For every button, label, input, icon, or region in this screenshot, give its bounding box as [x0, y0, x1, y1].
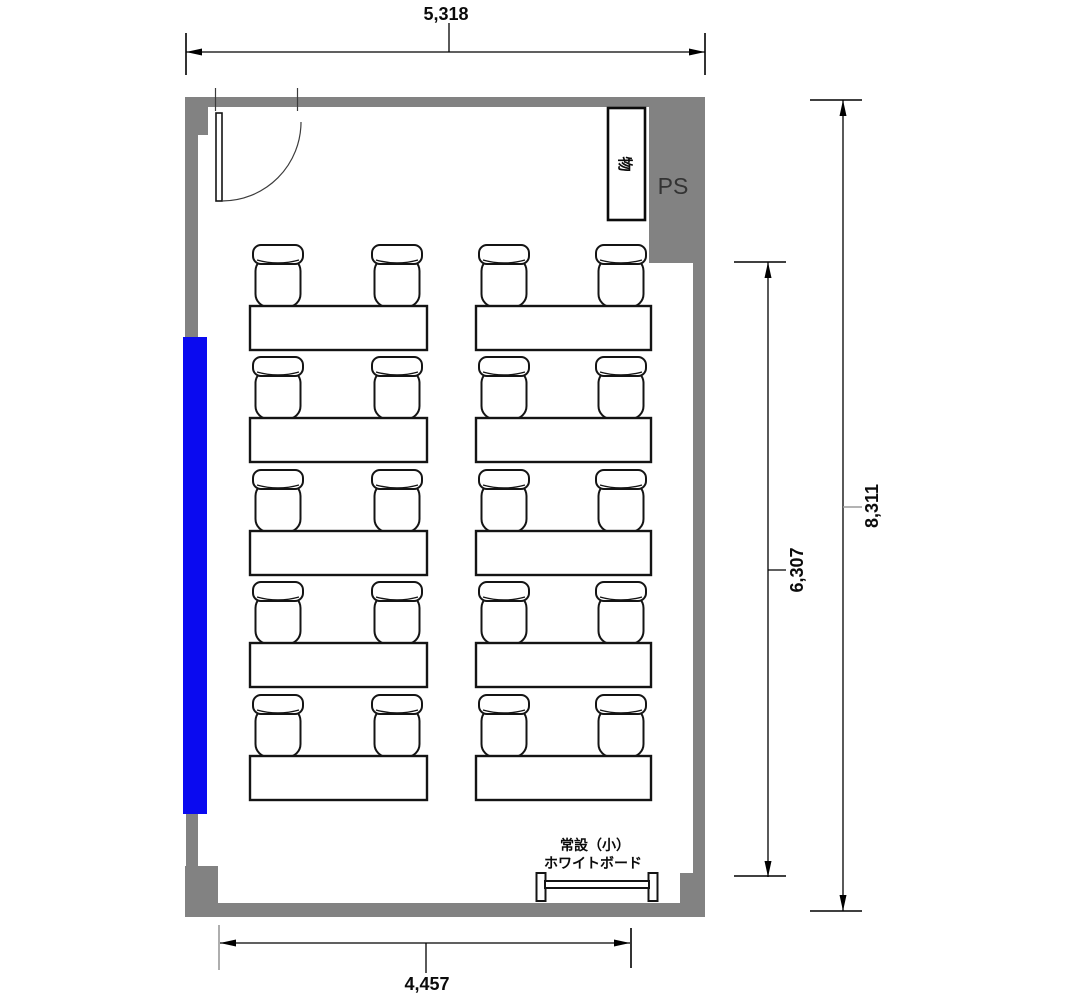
chair	[596, 245, 646, 307]
chair-seat	[482, 483, 527, 532]
dim-arrow	[614, 940, 630, 947]
chair-seat	[482, 258, 527, 307]
chair-seat	[256, 483, 301, 532]
chair	[479, 245, 529, 307]
chair	[253, 470, 303, 532]
top-wall	[185, 97, 705, 107]
dimension-right-outer: 8,311	[810, 100, 882, 911]
chair	[253, 582, 303, 644]
door-swing-arc	[222, 122, 301, 201]
table-group	[250, 695, 427, 800]
chair-seat	[375, 595, 420, 644]
chair-seat	[482, 370, 527, 419]
chair-seat	[256, 258, 301, 307]
chair-seat	[599, 483, 644, 532]
chair-seat	[482, 595, 527, 644]
table-group	[476, 695, 651, 800]
table-group	[250, 470, 427, 575]
table	[476, 531, 651, 575]
chair	[596, 695, 646, 757]
table-group	[476, 470, 651, 575]
dim-arrow	[220, 940, 236, 947]
whiteboard: 常設（小） ホワイトボード	[537, 837, 658, 901]
chair	[253, 245, 303, 307]
dimension-right-inner: 6,307	[734, 262, 807, 877]
chair-seat	[599, 370, 644, 419]
chair	[596, 582, 646, 644]
dim-arrow	[840, 100, 847, 116]
ps-label: PS	[658, 173, 689, 199]
chair-seat	[256, 370, 301, 419]
table-group	[250, 582, 427, 687]
chair	[253, 357, 303, 419]
chair-seat	[599, 258, 644, 307]
chair	[479, 357, 529, 419]
cabinet: 物	[608, 108, 645, 220]
chair	[372, 245, 422, 307]
chair	[372, 582, 422, 644]
chair	[372, 470, 422, 532]
chair	[372, 695, 422, 757]
dim-arrow	[765, 861, 772, 877]
chair-seat	[375, 258, 420, 307]
chair-seat	[599, 708, 644, 757]
dim-text-top: 5,318	[423, 4, 468, 24]
bottom-right-pillar	[680, 873, 705, 917]
chair	[479, 582, 529, 644]
dim-arrow	[840, 895, 847, 911]
table	[250, 643, 427, 687]
table	[250, 418, 427, 462]
dim-arrow	[765, 262, 772, 278]
table-group	[250, 357, 427, 462]
chair	[479, 470, 529, 532]
table	[476, 643, 651, 687]
cabinet-label: 物	[616, 156, 634, 171]
table	[250, 531, 427, 575]
whiteboard-note-line1: 常設（小）	[560, 837, 630, 853]
chair-seat	[256, 595, 301, 644]
dim-text-right-inner: 6,307	[787, 547, 807, 592]
table-group	[476, 357, 651, 462]
table-group	[476, 245, 651, 350]
chair-seat	[375, 483, 420, 532]
chair	[372, 357, 422, 419]
left-wall-lower	[186, 813, 198, 873]
dim-text-right-outer: 8,311	[862, 484, 882, 528]
floor-plan-page: 物 PS 常設（小） ホワイトボード 5,318 4,457	[0, 0, 1068, 1000]
dim-arrow	[689, 49, 705, 56]
chair-seat	[599, 595, 644, 644]
table-group	[250, 245, 427, 350]
dimension-bottom: 4,457	[219, 925, 631, 994]
window-strip	[183, 337, 207, 814]
whiteboard-board	[545, 881, 649, 888]
table-group	[476, 582, 651, 687]
chair-seat	[375, 708, 420, 757]
chair-seat	[375, 370, 420, 419]
table	[250, 756, 427, 800]
chair	[479, 695, 529, 757]
chair-seat	[256, 708, 301, 757]
dim-arrow	[186, 49, 202, 56]
table	[476, 418, 651, 462]
floor-plan: 物 PS 常設（小） ホワイトボード 5,318 4,457	[0, 0, 1068, 1000]
chair-seat	[482, 708, 527, 757]
chair	[596, 470, 646, 532]
chair	[596, 357, 646, 419]
dim-text-bottom: 4,457	[404, 974, 449, 994]
door-leaf	[216, 113, 222, 201]
chair	[253, 695, 303, 757]
table	[476, 306, 651, 350]
seating-area	[250, 245, 651, 800]
dimension-top: 5,318	[186, 4, 705, 75]
table	[250, 306, 427, 350]
whiteboard-note-line2: ホワイトボード	[544, 855, 642, 871]
left-wall-upper	[185, 107, 198, 338]
bottom-wall	[185, 903, 705, 917]
table	[476, 756, 651, 800]
